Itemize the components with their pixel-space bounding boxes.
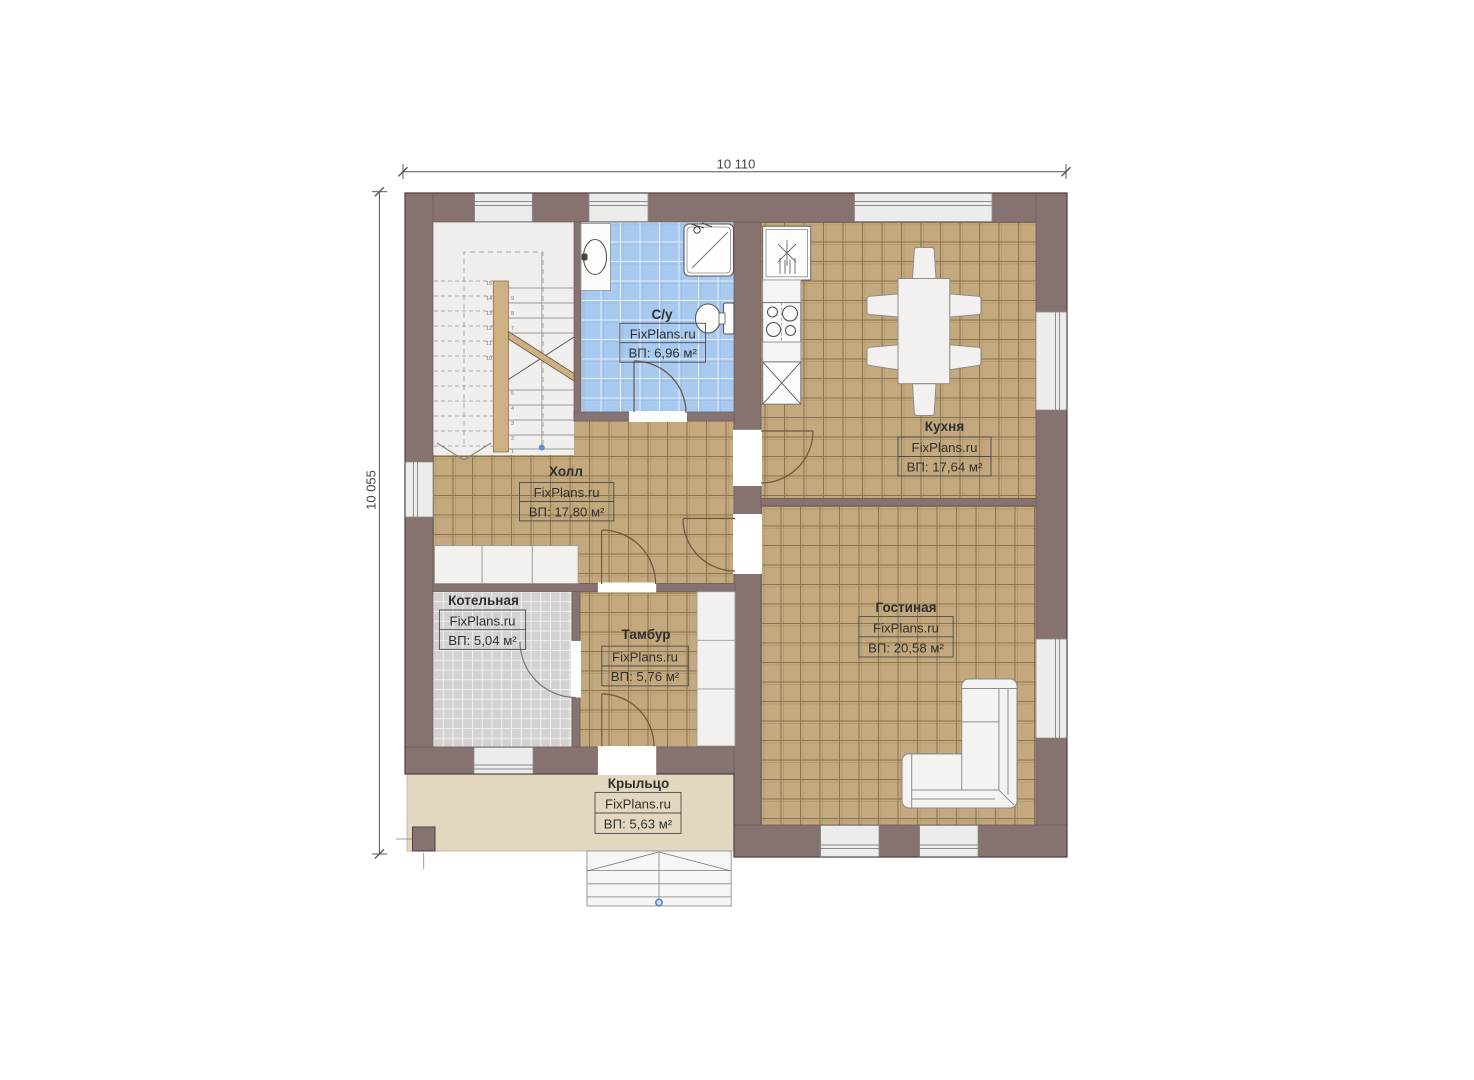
svg-text:4: 4 <box>511 406 514 412</box>
svg-text:ВП: 5,76 м²: ВП: 5,76 м² <box>611 669 680 684</box>
svg-text:3: 3 <box>511 421 514 427</box>
svg-text:ВП: 5,04 м²: ВП: 5,04 м² <box>448 633 517 648</box>
svg-text:FixPlans.ru: FixPlans.ru <box>612 650 678 665</box>
svg-text:10 055: 10 055 <box>364 470 379 510</box>
svg-text:11: 11 <box>486 341 492 347</box>
svg-text:FixPlans.ru: FixPlans.ru <box>534 485 600 500</box>
svg-text:1: 1 <box>511 449 514 455</box>
svg-text:С/у: С/у <box>651 307 673 322</box>
svg-text:FixPlans.ru: FixPlans.ru <box>450 613 516 628</box>
svg-text:ВП: 17,64 м²: ВП: 17,64 м² <box>907 460 983 475</box>
svg-text:Котельная: Котельная <box>448 593 519 608</box>
svg-text:10 110: 10 110 <box>717 157 756 172</box>
svg-text:2: 2 <box>511 436 514 442</box>
svg-text:ВП: 17,80 м²: ВП: 17,80 м² <box>529 504 605 519</box>
svg-text:FixPlans.ru: FixPlans.ru <box>912 440 978 455</box>
svg-text:FixPlans.ru: FixPlans.ru <box>605 797 671 812</box>
svg-text:Тамбур: Тамбур <box>622 627 671 642</box>
svg-text:7: 7 <box>511 326 514 332</box>
svg-text:Холл: Холл <box>549 464 583 479</box>
svg-text:12: 12 <box>486 326 492 332</box>
svg-text:ВП: 6,96 м²: ВП: 6,96 м² <box>628 346 697 361</box>
svg-text:10: 10 <box>486 356 492 362</box>
svg-text:5: 5 <box>511 391 514 397</box>
svg-text:13: 13 <box>486 311 492 317</box>
svg-text:Крыльцо: Крыльцо <box>608 776 669 791</box>
svg-text:15: 15 <box>486 281 492 287</box>
svg-text:Гостиная: Гостиная <box>875 600 936 615</box>
svg-text:FixPlans.ru: FixPlans.ru <box>873 620 939 635</box>
svg-text:ВП: 5,63 м²: ВП: 5,63 м² <box>604 817 673 832</box>
svg-text:14: 14 <box>486 296 492 302</box>
svg-text:FixPlans.ru: FixPlans.ru <box>630 327 696 342</box>
svg-text:ВП: 20,58 м²: ВП: 20,58 м² <box>868 640 944 655</box>
svg-text:8: 8 <box>511 311 514 317</box>
svg-text:Кухня: Кухня <box>925 419 964 434</box>
svg-text:9: 9 <box>511 296 514 302</box>
